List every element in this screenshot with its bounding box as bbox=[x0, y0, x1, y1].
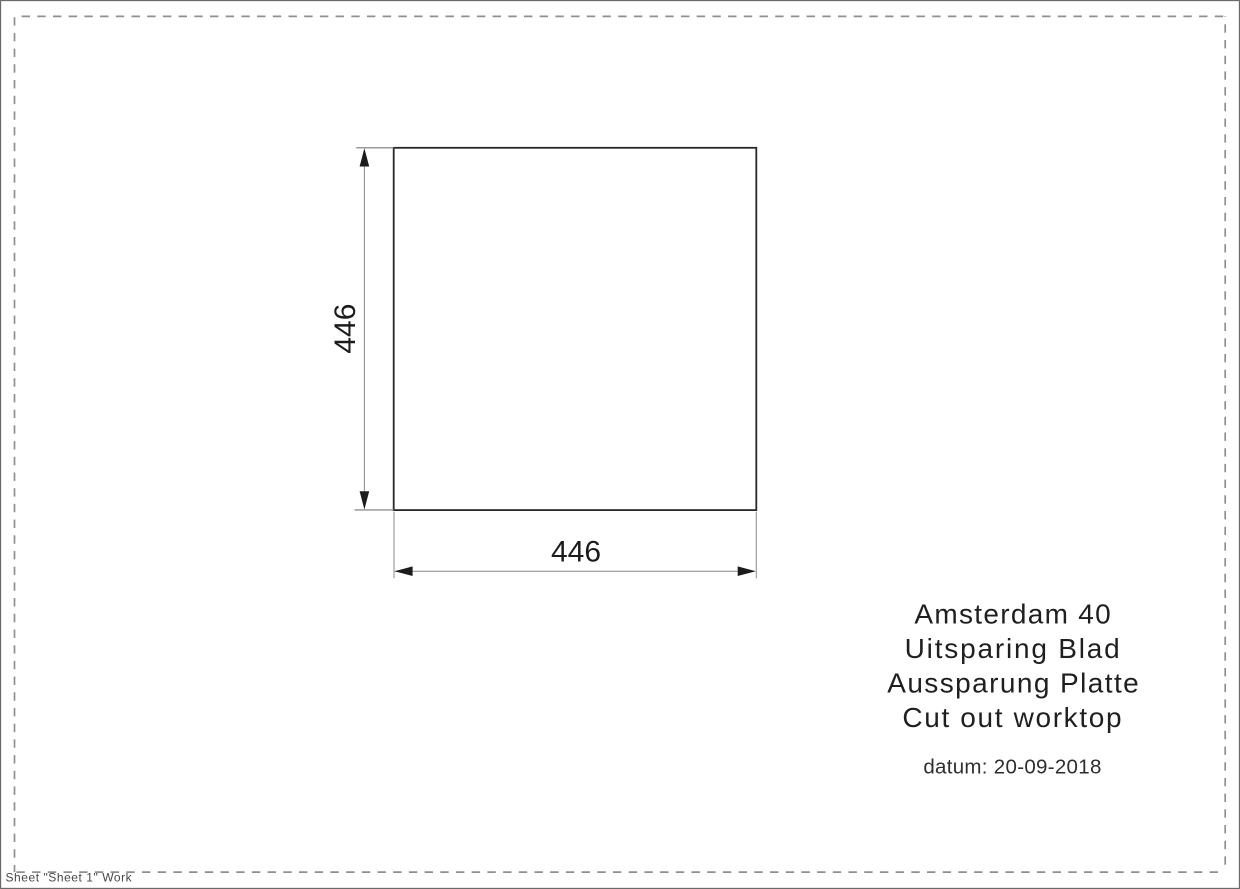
svg-text:Sheet "Sheet 1" Work: Sheet "Sheet 1" Work bbox=[6, 871, 133, 885]
svg-text:446: 446 bbox=[329, 304, 362, 354]
svg-text:datum: 20-09-2018: datum: 20-09-2018 bbox=[923, 756, 1101, 779]
svg-text:446: 446 bbox=[551, 535, 601, 568]
svg-text:Uitsparing Blad: Uitsparing Blad bbox=[905, 633, 1122, 664]
svg-text:Cut out worktop: Cut out worktop bbox=[902, 702, 1123, 733]
svg-text:Amsterdam 40: Amsterdam 40 bbox=[914, 599, 1112, 630]
svg-text:Aussparung Platte: Aussparung Platte bbox=[887, 668, 1140, 699]
